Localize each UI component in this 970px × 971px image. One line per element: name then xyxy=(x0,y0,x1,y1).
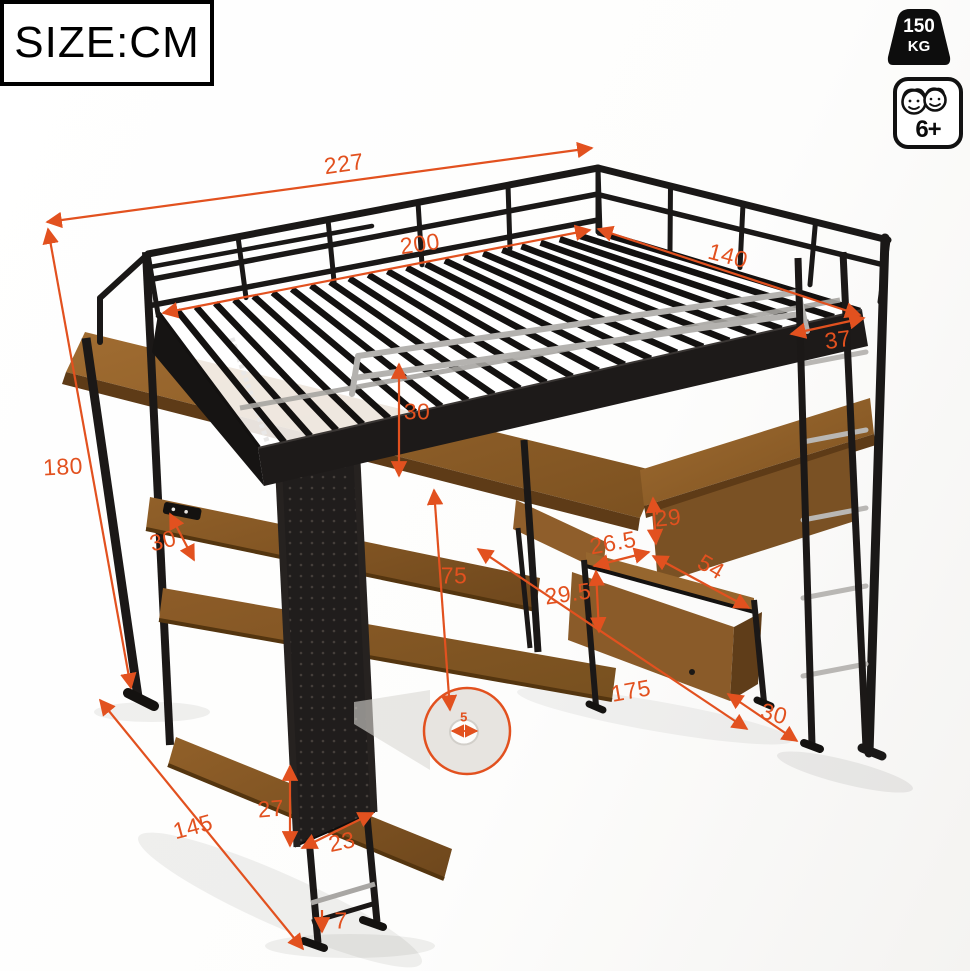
drawer-handle xyxy=(689,669,695,675)
dim-guardrail-height: 37 xyxy=(823,325,853,355)
dim-peg-hole-diameter: 5 xyxy=(460,710,468,725)
weight-capacity-badge: 150 KG xyxy=(884,7,954,67)
dim-total-length: 227 xyxy=(322,148,365,180)
right-corner-post xyxy=(869,238,885,753)
weight-unit: KG xyxy=(884,39,954,54)
dim-cubby-opening-height: 29 xyxy=(654,503,683,532)
size-unit-box: SIZE:CM xyxy=(0,0,214,86)
loft-bed-illustration xyxy=(0,0,970,971)
dim-foot-height: 7 xyxy=(334,908,347,935)
age-recommendation-badge: 6+ xyxy=(893,77,963,149)
weight-value: 150 xyxy=(884,17,954,36)
loft-bed-dimension-diagram: 227 200 140 37 180 30 30 75 29 26.5 54 2… xyxy=(0,0,970,971)
dim-sleeping-length: 200 xyxy=(398,228,441,260)
dim-under-desk-clearance: 75 xyxy=(441,563,468,590)
size-unit-label: SIZE:CM xyxy=(14,18,199,68)
dim-front-rail-height: 30 xyxy=(404,399,431,426)
dim-panel-lower-height: 27 xyxy=(257,794,286,823)
dim-panel-width: 23 xyxy=(326,826,358,858)
dim-total-height: 180 xyxy=(42,452,83,481)
age-value: 6+ xyxy=(897,116,959,144)
peg-hole-callout xyxy=(354,688,510,774)
